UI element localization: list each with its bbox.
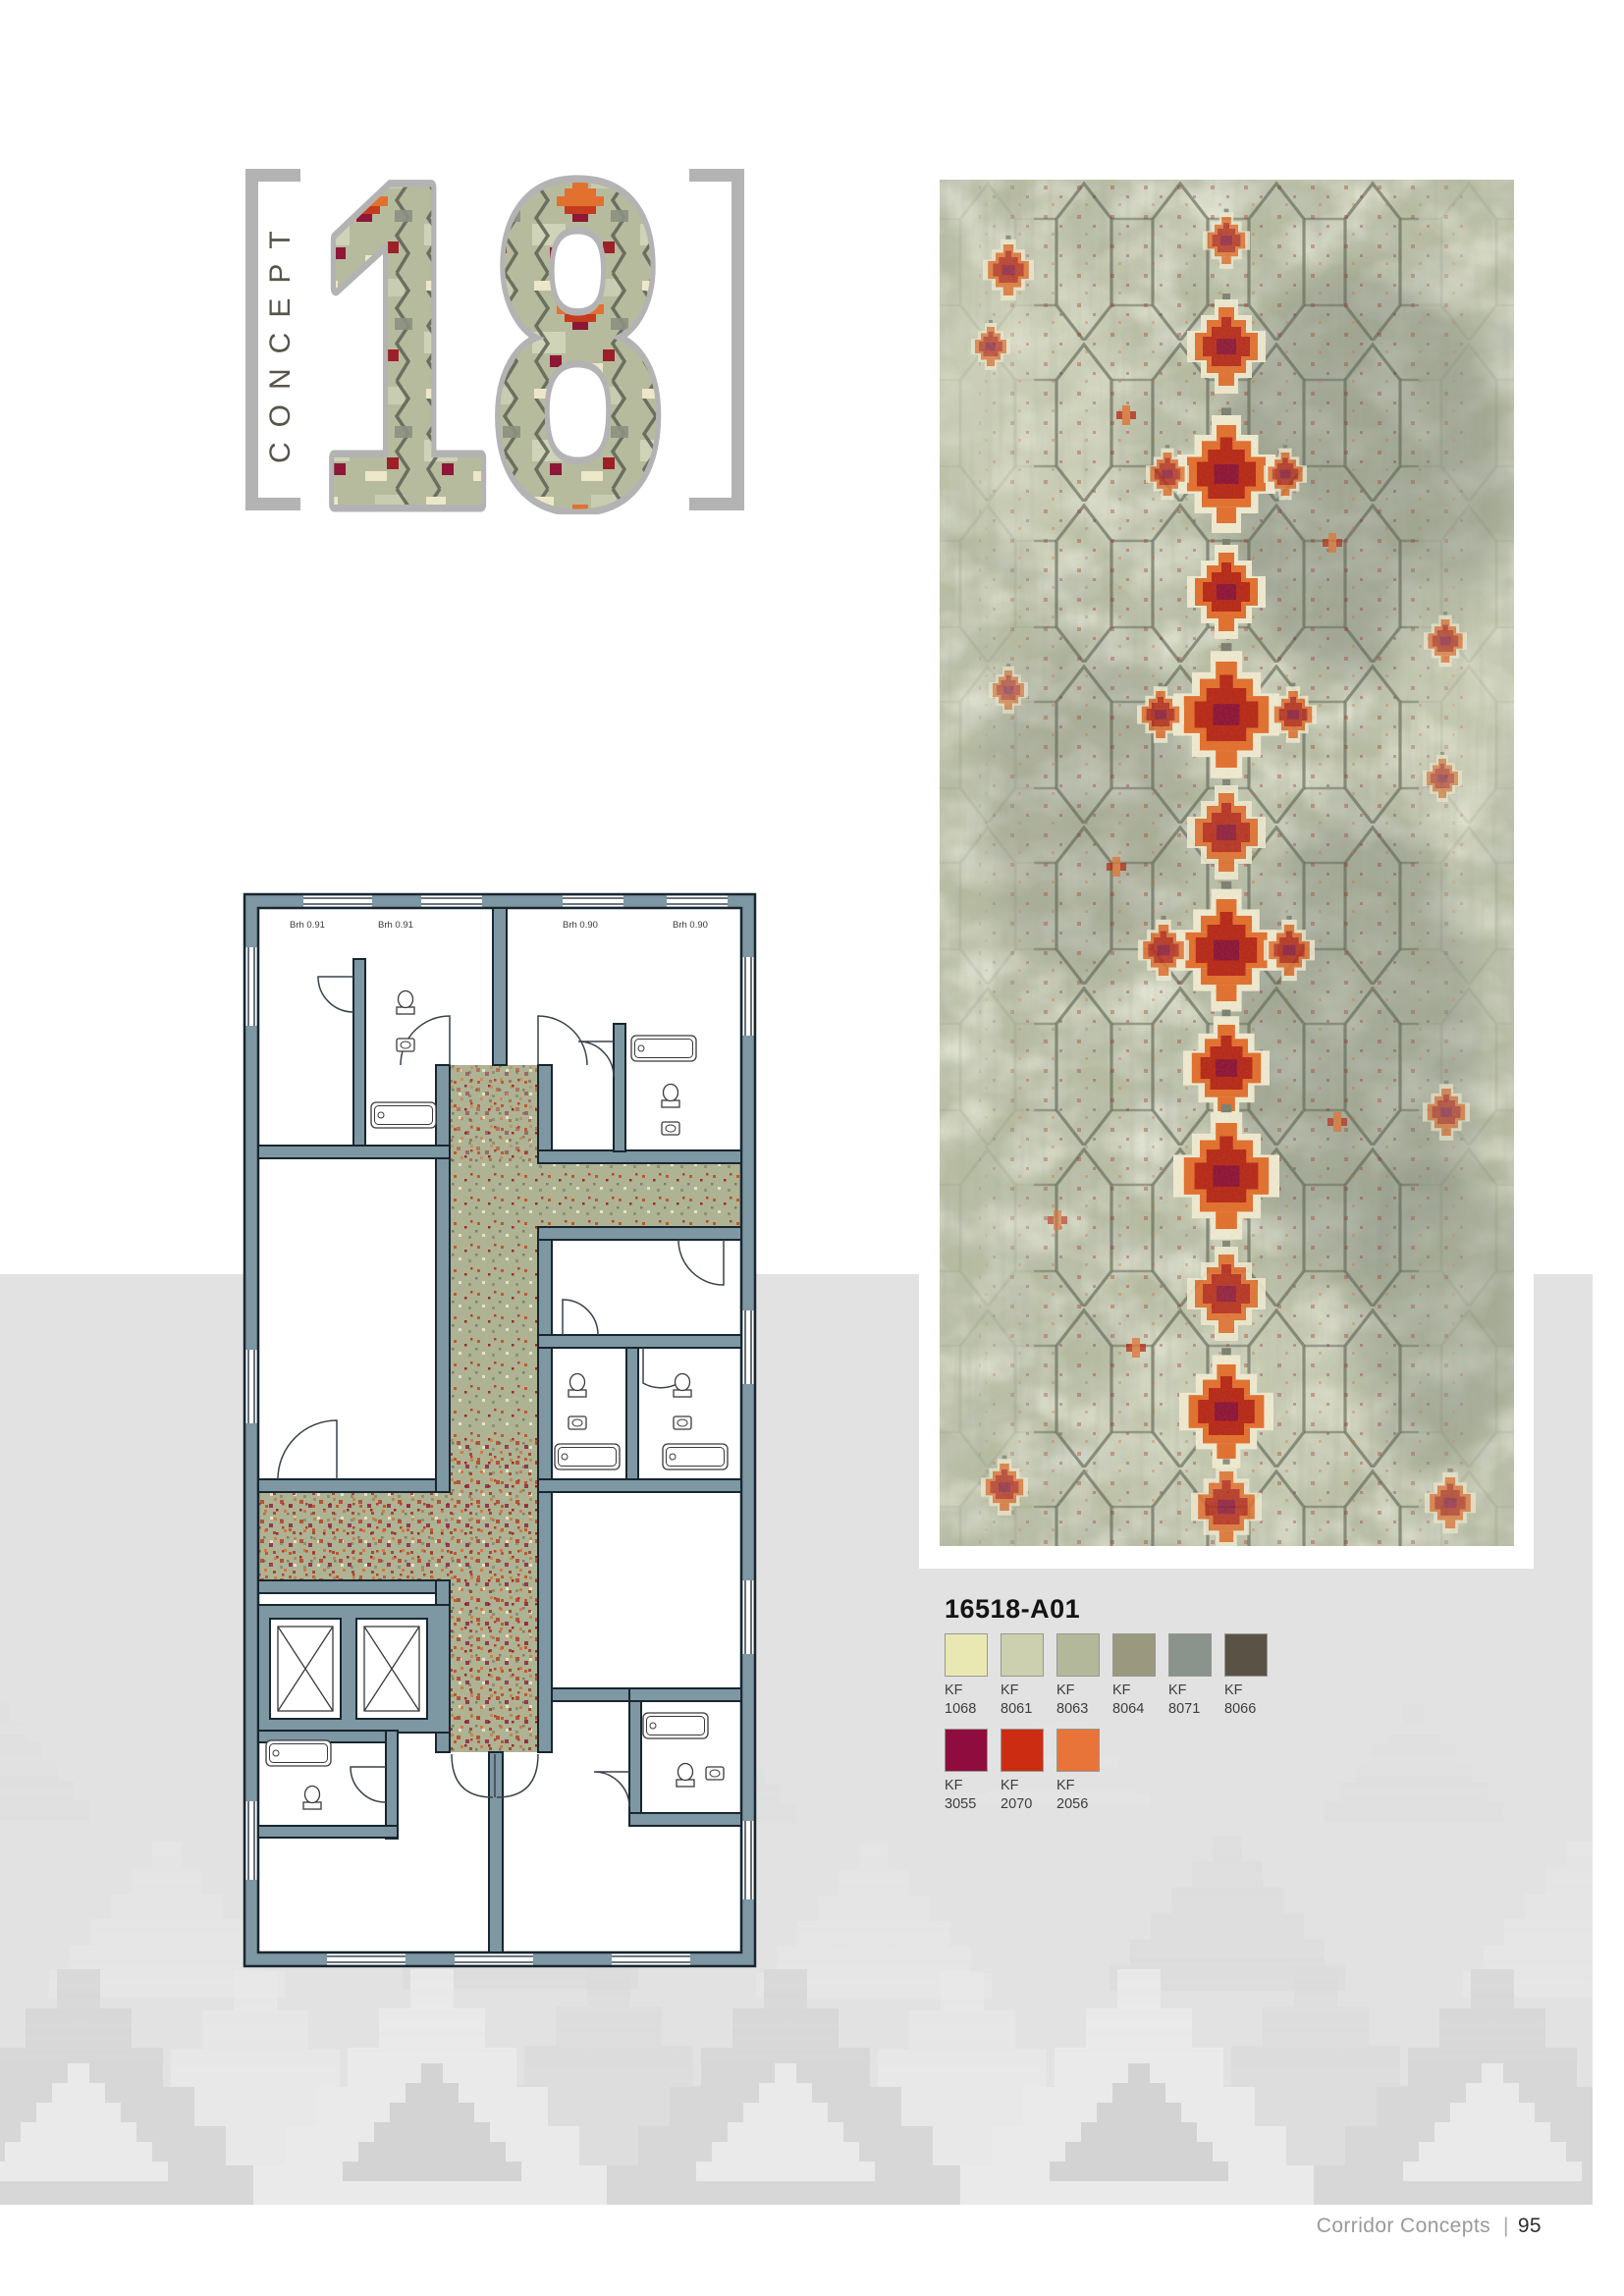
concept-number-art: 18 [310, 165, 670, 514]
color-swatch: KF 8071 [1168, 1633, 1212, 1719]
swatch-code: 8064 [1112, 1700, 1156, 1719]
swatch-label: KF [1224, 1682, 1268, 1700]
page-number: 95 [1518, 2215, 1542, 2237]
swatch-label: KF [1001, 1682, 1044, 1700]
color-swatch: KF 8064 [1112, 1633, 1156, 1719]
room-label: Brh 0.90 [673, 920, 708, 931]
color-swatch: KF 8066 [1224, 1633, 1268, 1719]
color-swatch: KF 8063 [1056, 1633, 1100, 1719]
footer-separator: | [1490, 2215, 1518, 2237]
floor-plan: Brh 0.91 Brh 0.91 Brh 0.90 Brh 0.90 [239, 888, 761, 1972]
swatch-code: 8063 [1056, 1700, 1100, 1719]
carpet-sample-frame [919, 163, 1534, 1569]
swatch-code: 1068 [945, 1700, 988, 1719]
swatch-code: 8061 [1001, 1700, 1044, 1719]
swatch-color [945, 1729, 988, 1772]
swatch-color [1112, 1633, 1156, 1677]
product-block: 16518-A01 KF 1068 KF 8061 KF 8063 KF 806… [945, 1594, 1494, 1815]
swatch-color [1001, 1633, 1044, 1677]
product-code: 16518-A01 [945, 1594, 1494, 1625]
color-swatch: KF 2056 [1056, 1729, 1100, 1814]
swatch-label: KF [1056, 1682, 1100, 1700]
swatch-color [1224, 1633, 1268, 1677]
concept-title-block: CONCEPT 18 [245, 165, 746, 514]
swatch-code: 2070 [1001, 1795, 1044, 1814]
carpet-sample-image [940, 180, 1514, 1546]
color-swatch: KF 3055 [945, 1729, 988, 1814]
color-swatch: KF 2070 [1001, 1729, 1044, 1814]
swatch-code: 2056 [1056, 1795, 1100, 1814]
swatch-code: 3055 [945, 1795, 988, 1814]
room-label: Brh 0.90 [563, 920, 598, 931]
swatch-label: KF [1001, 1777, 1044, 1795]
room-label: Brh 0.91 [378, 920, 413, 931]
swatch-label: KF [945, 1777, 988, 1795]
swatch-row-neutrals: KF 1068 KF 8061 KF 8063 KF 8064 KF 8071 … [945, 1633, 1494, 1719]
concept-label: CONCEPT [260, 181, 301, 499]
swatch-label: KF [1168, 1682, 1212, 1700]
swatch-label: KF [1112, 1682, 1156, 1700]
footer-section-title: Corridor Concepts [1317, 2215, 1490, 2237]
swatch-color [1056, 1729, 1100, 1772]
swatch-color [945, 1633, 988, 1677]
color-swatch: KF 1068 [945, 1633, 988, 1719]
bracket-right-decoration [689, 169, 744, 510]
concept-number: 18 [314, 165, 666, 514]
swatch-row-accents: KF 3055 KF 2070 KF 2056 [945, 1729, 1494, 1814]
swatch-label: KF [945, 1682, 988, 1700]
swatch-color [1001, 1729, 1044, 1772]
swatch-color [1168, 1633, 1212, 1677]
swatch-code: 8071 [1168, 1700, 1212, 1719]
swatch-label: KF [1056, 1777, 1100, 1795]
swatch-code: 8066 [1224, 1700, 1268, 1719]
swatch-color [1056, 1633, 1100, 1677]
color-swatch: KF 8061 [1001, 1633, 1044, 1719]
room-label: Brh 0.91 [290, 920, 325, 931]
page-footer: Corridor Concepts|95 [1129, 2215, 1542, 2238]
